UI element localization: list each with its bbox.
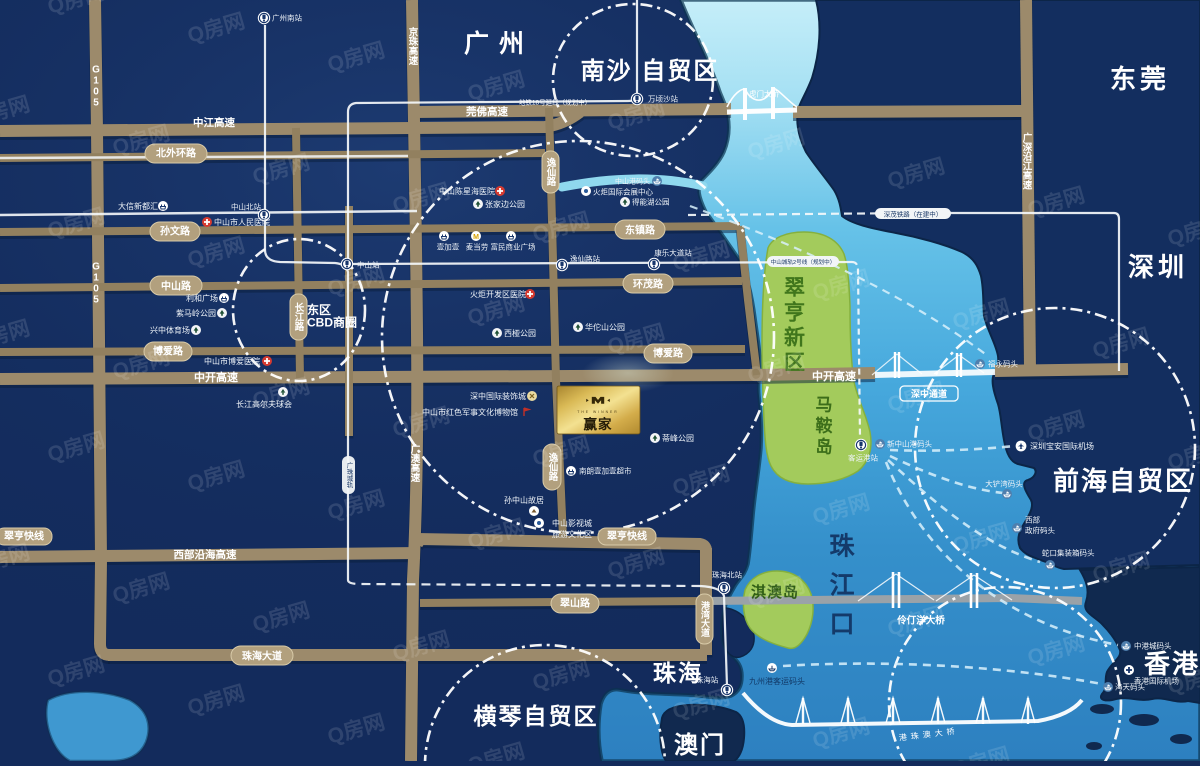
svg-text:利和广场: 利和广场 bbox=[186, 293, 218, 303]
svg-text:麦当劳: 麦当劳 bbox=[466, 242, 489, 252]
svg-text:逸仙路站: 逸仙路站 bbox=[570, 254, 600, 264]
svg-text:华佗山公园: 华佗山公园 bbox=[585, 322, 625, 332]
svg-text:中山路: 中山路 bbox=[161, 280, 192, 293]
svg-text:珠海: 珠海 bbox=[653, 660, 703, 686]
svg-text:M: M bbox=[473, 234, 479, 241]
svg-text:虎门大桥: 虎门大桥 bbox=[749, 89, 779, 99]
svg-text:深圳: 深圳 bbox=[1128, 252, 1188, 282]
svg-text:莞佛高速: 莞佛高速 bbox=[465, 105, 508, 118]
svg-text:得能湖公园: 得能湖公园 bbox=[632, 197, 670, 207]
svg-text:CBD商圈: CBD商圈 bbox=[307, 315, 357, 330]
svg-text:中开高速: 中开高速 bbox=[812, 369, 856, 383]
svg-text:地铁18号延线（规划中）: 地铁18号延线（规划中） bbox=[519, 97, 591, 106]
svg-text:政府码头: 政府码头 bbox=[1025, 525, 1055, 535]
svg-text:中山影视城: 中山影视城 bbox=[552, 518, 592, 528]
svg-text:西桠公园: 西桠公园 bbox=[504, 328, 536, 338]
svg-text:兴中体育场: 兴中体育场 bbox=[150, 325, 190, 335]
svg-text:珠海大道: 珠海大道 bbox=[242, 650, 282, 663]
svg-text:港湾大道: 港湾大道 bbox=[700, 600, 711, 638]
svg-text:新中山港码头: 新中山港码头 bbox=[887, 439, 932, 449]
svg-text:澳门: 澳门 bbox=[674, 731, 726, 759]
svg-text:横琴自贸区: 横琴自贸区 bbox=[474, 703, 599, 729]
svg-text:长江路: 长江路 bbox=[293, 302, 305, 332]
svg-text:大信新都汇: 大信新都汇 bbox=[118, 201, 158, 211]
svg-text:壹加壹: 壹加壹 bbox=[437, 242, 460, 252]
svg-text:广州: 广州 bbox=[464, 29, 534, 58]
svg-text:中山城轨2号线（规划中）: 中山城轨2号线（规划中） bbox=[771, 258, 836, 266]
svg-text:中山港码头: 中山港码头 bbox=[615, 177, 650, 186]
svg-text:深茂铁路（在建中）: 深茂铁路（在建中） bbox=[884, 209, 943, 218]
svg-text:THE WINNER: THE WINNER bbox=[577, 410, 618, 414]
svg-text:广澳高速: 广澳高速 bbox=[409, 443, 421, 483]
svg-text:马鞍岛: 马鞍岛 bbox=[813, 395, 833, 458]
svg-text:博爱路: 博爱路 bbox=[653, 347, 684, 360]
svg-text:旅游文化区: 旅游文化区 bbox=[552, 529, 592, 539]
svg-text:珠海北站: 珠海北站 bbox=[712, 570, 742, 580]
svg-text:福永码头: 福永码头 bbox=[988, 359, 1018, 369]
svg-text:京珠高速: 京珠高速 bbox=[407, 26, 419, 66]
svg-text:南沙 自贸区: 南沙 自贸区 bbox=[581, 57, 720, 85]
svg-text:东莞: 东莞 bbox=[1110, 64, 1170, 94]
svg-text:南朗壹加壹超市: 南朗壹加壹超市 bbox=[579, 466, 632, 476]
svg-text:翠亨快线: 翠亨快线 bbox=[607, 530, 647, 543]
svg-text:九州港客运码头: 九州港客运码头 bbox=[749, 676, 805, 686]
svg-text:蛇口集装箱码头: 蛇口集装箱码头 bbox=[1042, 548, 1095, 558]
svg-text:西部沿海高速: 西部沿海高速 bbox=[174, 548, 237, 561]
svg-text:北外环路: 北外环路 bbox=[156, 147, 197, 160]
svg-text:孙文路: 孙文路 bbox=[160, 225, 191, 238]
svg-text:中山北站: 中山北站 bbox=[231, 202, 261, 212]
svg-text:富民商业广场: 富民商业广场 bbox=[491, 242, 536, 252]
svg-text:逸仙路: 逸仙路 bbox=[545, 157, 557, 187]
svg-text:广州南站: 广州南站 bbox=[272, 13, 302, 23]
svg-text:环茂路: 环茂路 bbox=[633, 278, 664, 291]
svg-text:翠山路: 翠山路 bbox=[560, 597, 591, 610]
svg-text:东镇路: 东镇路 bbox=[625, 224, 656, 237]
svg-text:中山市博爱医院: 中山市博爱医院 bbox=[204, 356, 260, 366]
svg-text:蒂峰公园: 蒂峰公园 bbox=[662, 433, 694, 443]
svg-text:赢家: 赢家 bbox=[584, 416, 613, 432]
svg-text:中山市人民医院: 中山市人民医院 bbox=[214, 217, 270, 227]
svg-text:深中国际装饰城: 深中国际装饰城 bbox=[470, 391, 526, 401]
svg-text:海天码头: 海天码头 bbox=[1115, 682, 1145, 692]
svg-text:广深沿江高速: 广深沿江高速 bbox=[1021, 132, 1033, 191]
svg-text:客运港站: 客运港站 bbox=[848, 453, 878, 463]
svg-text:珠江口: 珠江口 bbox=[826, 533, 855, 650]
svg-text:孙中山故居: 孙中山故居 bbox=[504, 495, 544, 505]
svg-text:西部: 西部 bbox=[1025, 515, 1041, 525]
svg-text:大铲湾码头: 大铲湾码头 bbox=[985, 479, 1023, 489]
svg-text:紫马岭公园: 紫马岭公园 bbox=[176, 308, 216, 318]
svg-text:火炬国际会展中心: 火炬国际会展中心 bbox=[593, 187, 653, 197]
svg-text:中江高速: 中江高速 bbox=[193, 116, 235, 129]
svg-text:张家边公园: 张家边公园 bbox=[485, 199, 525, 209]
svg-text:中开高速: 中开高速 bbox=[194, 370, 238, 384]
